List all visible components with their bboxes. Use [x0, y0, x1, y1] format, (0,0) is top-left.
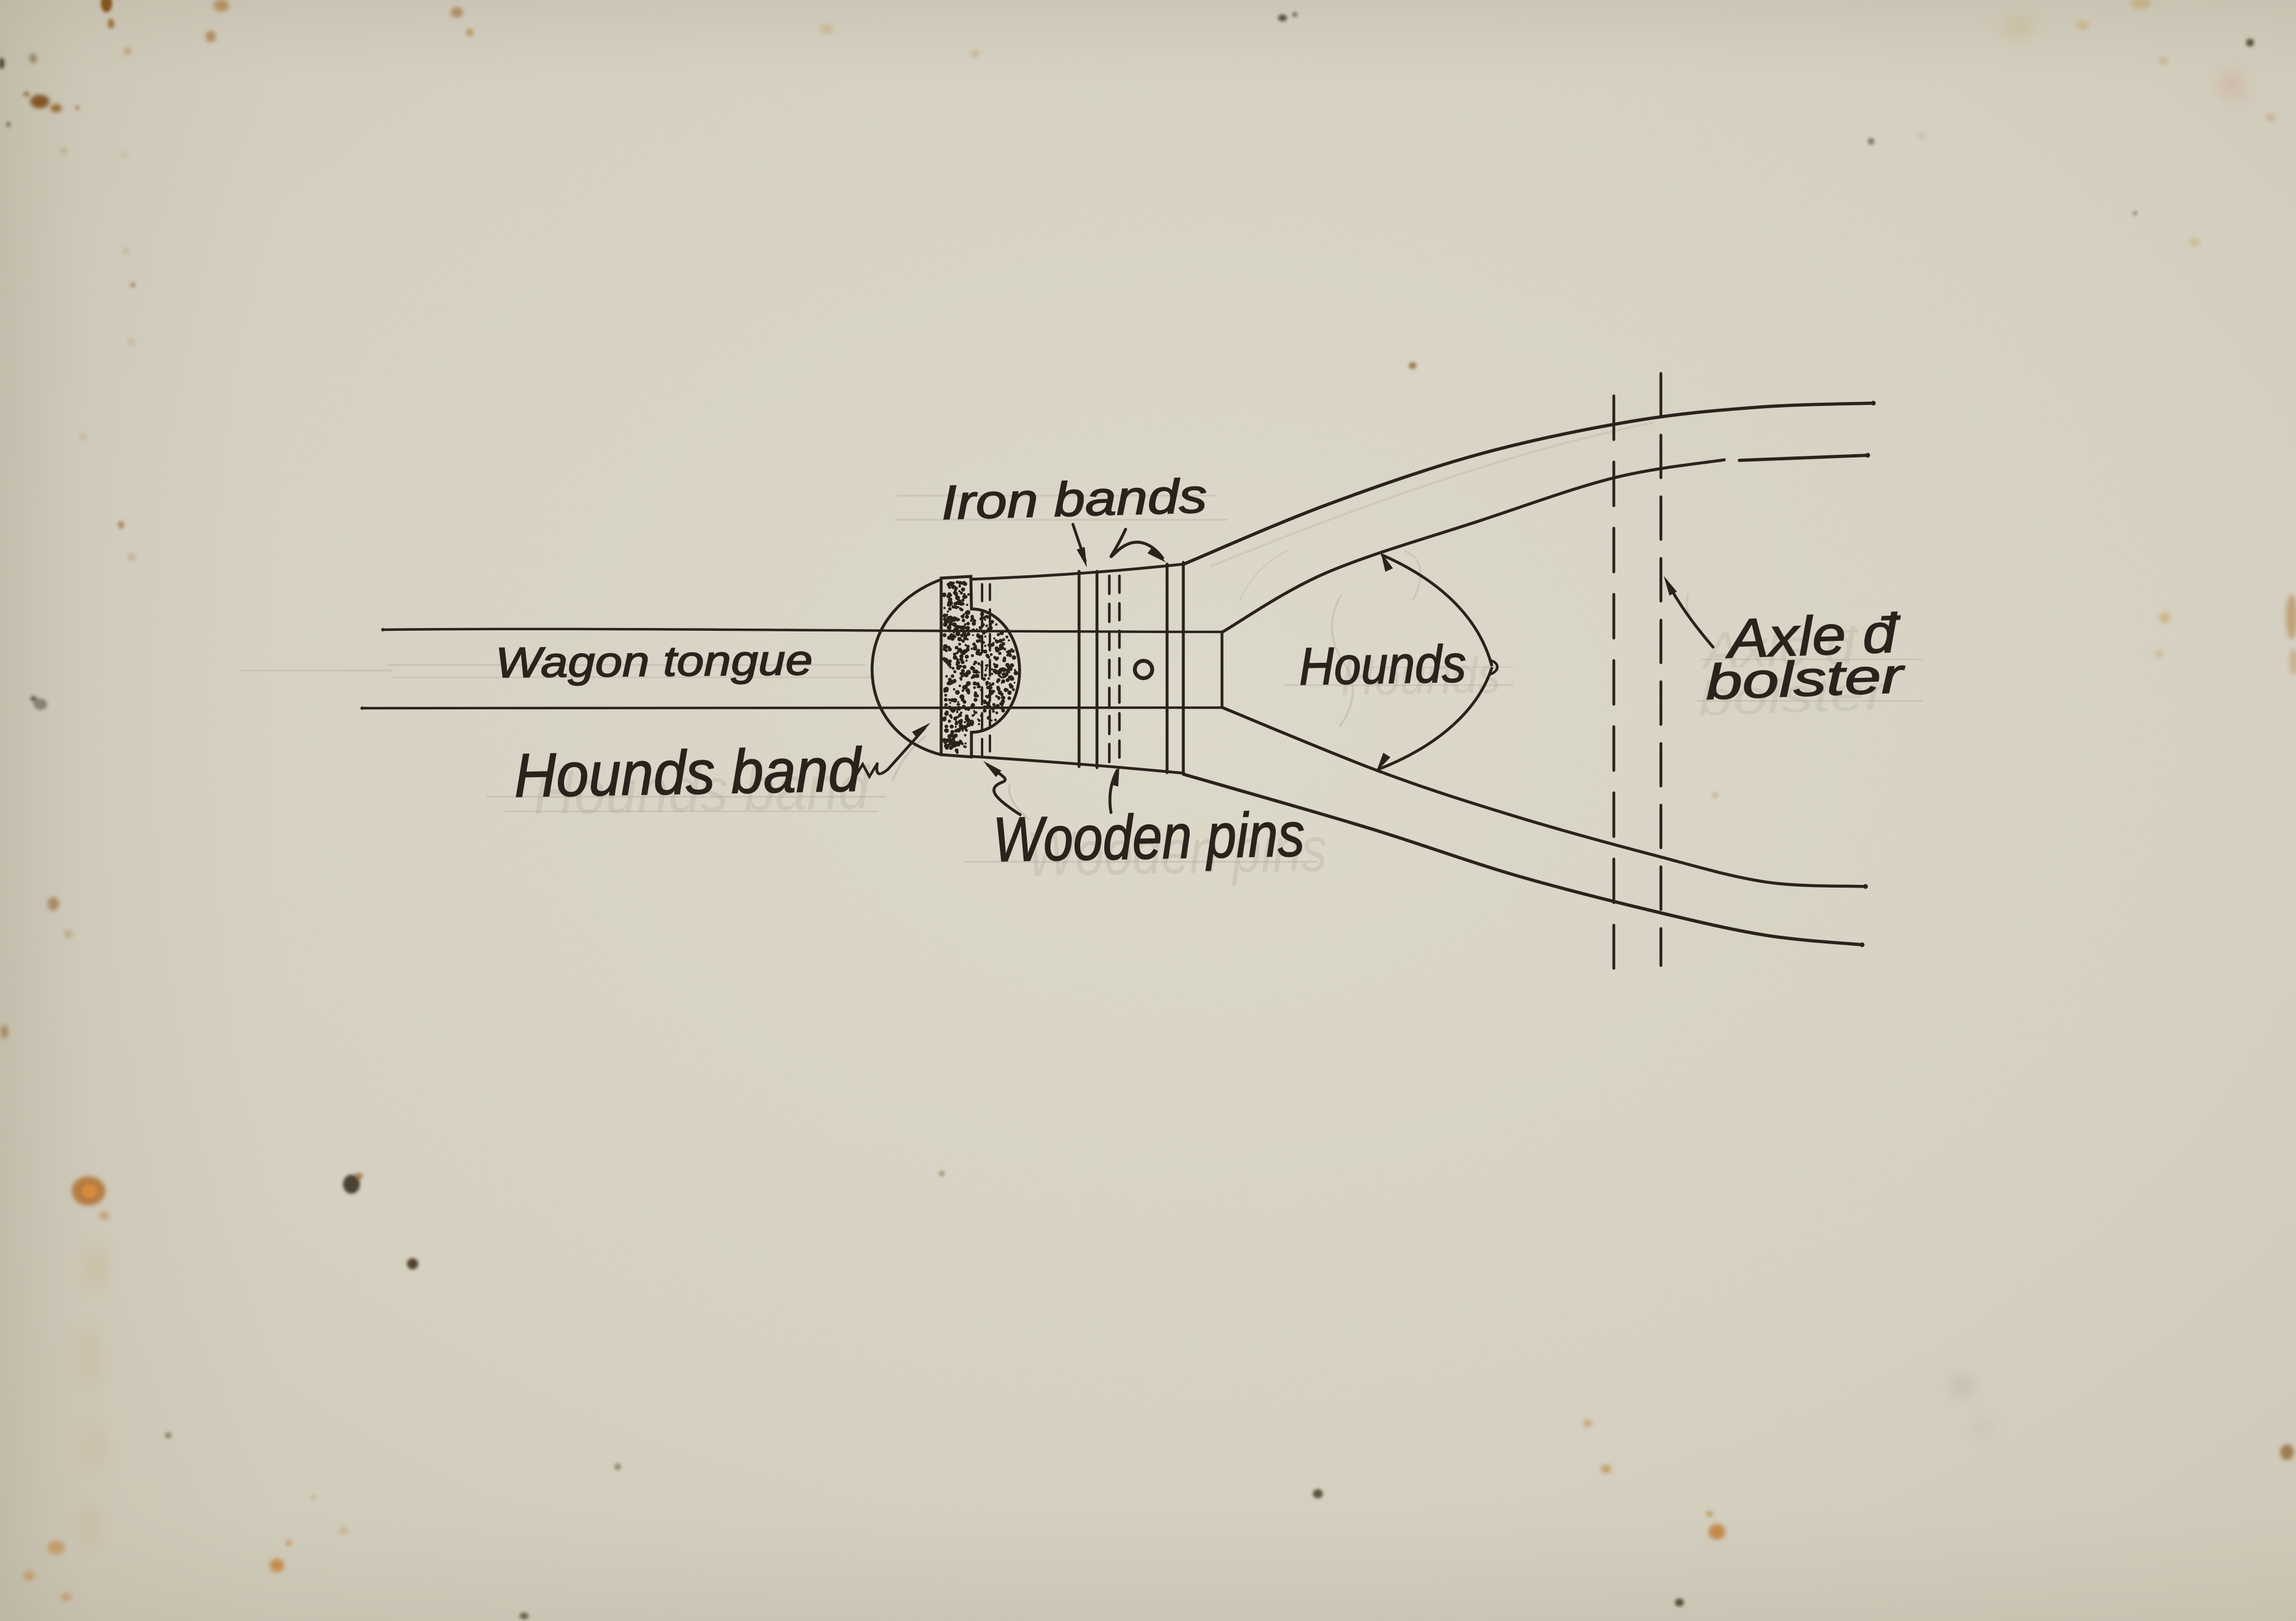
svg-text:Wagon tongue: Wagon tongue [495, 636, 813, 687]
svg-text:Hounds band: Hounds band [513, 735, 863, 810]
svg-text:Iron bands: Iron bands [941, 469, 1207, 530]
svg-text:Wooden pins: Wooden pins [992, 799, 1305, 875]
svg-text:bolster: bolster [1705, 648, 1906, 710]
svg-text:Hounds: Hounds [1299, 634, 1467, 696]
